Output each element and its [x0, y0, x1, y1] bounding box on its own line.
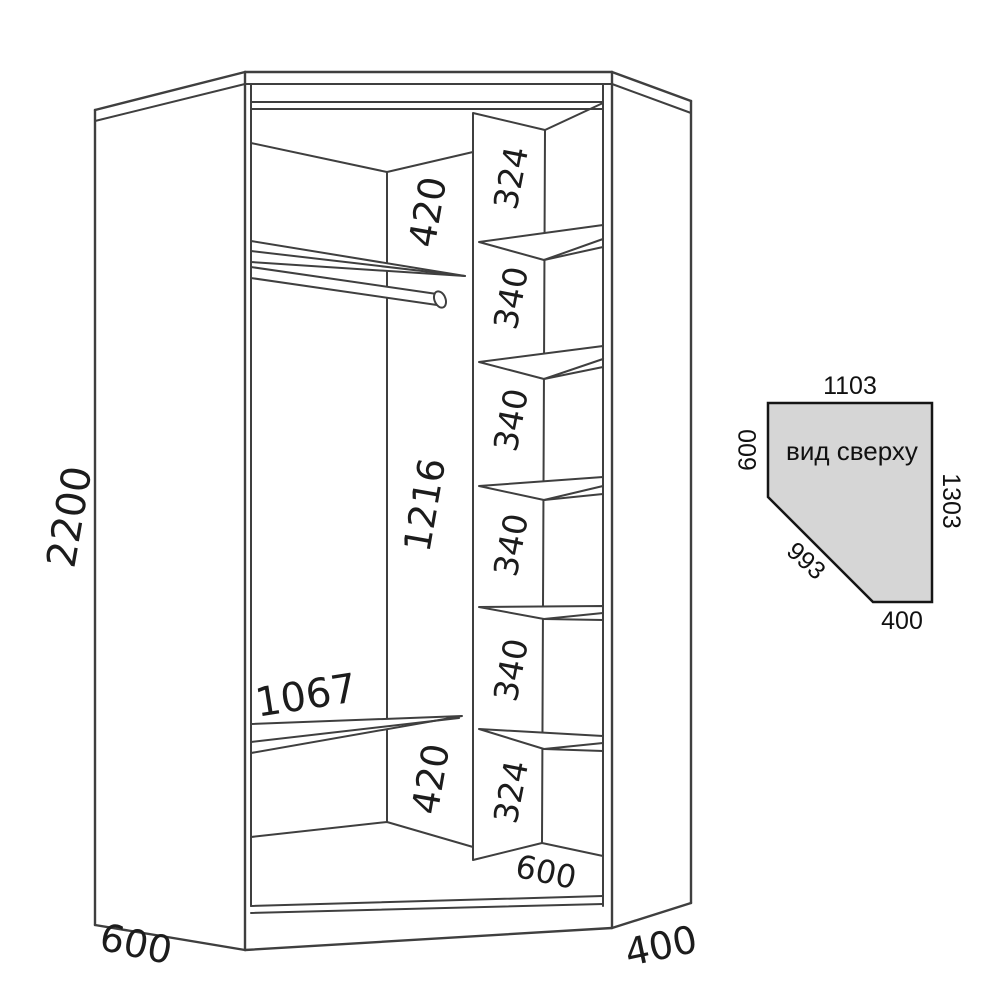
back-wall-bottom-edges [251, 822, 473, 847]
dim-top-gap: 420 [401, 173, 456, 250]
dim-column-depth: 600 [512, 847, 580, 897]
top-view-dim-bottom: 400 [881, 607, 923, 635]
dim-right-depth: 400 [621, 917, 701, 975]
wardrobe-front-view: 2200 600 400 1067 420 1216 420 600 324 3… [39, 72, 702, 975]
dim-total-height: 2200 [39, 463, 102, 571]
right-panel-top-band [612, 84, 691, 113]
top-view-dim-left: 600 [734, 429, 762, 471]
dim-shelf-width: 1067 [252, 665, 360, 726]
left-panel-top-band [95, 84, 245, 121]
right-side-panel [603, 72, 691, 928]
top-view-dim-right: 1303 [937, 473, 965, 529]
plinth-bottom-edge [245, 928, 612, 950]
floor-and-plinth [245, 896, 612, 950]
dim-left-depth: 600 [96, 915, 176, 973]
top-view-title: вид сверху [786, 436, 918, 466]
top-view-dim-top: 1103 [823, 372, 877, 400]
top-panel [245, 72, 612, 109]
wardrobe-dimension-drawing: 2200 600 400 1067 420 1216 420 600 324 3… [0, 0, 1000, 1000]
back-wall-top-edges [251, 143, 473, 172]
dim-middle-height: 1216 [396, 455, 455, 555]
right-panel-top-edge [612, 72, 691, 101]
drawing-canvas: 2200 600 400 1067 420 1216 420 600 324 3… [0, 0, 1000, 1000]
top-view-outline [768, 403, 932, 602]
top-view: вид сверху 1103 600 1303 993 400 [734, 372, 965, 635]
dim-bottom-gap: 420 [404, 740, 459, 817]
shelf-column [473, 103, 603, 860]
left-panel-top-edge [95, 72, 245, 110]
rod-end-cap [432, 290, 449, 310]
column-back-top-edge [545, 103, 603, 130]
left-side-panel [95, 72, 251, 950]
